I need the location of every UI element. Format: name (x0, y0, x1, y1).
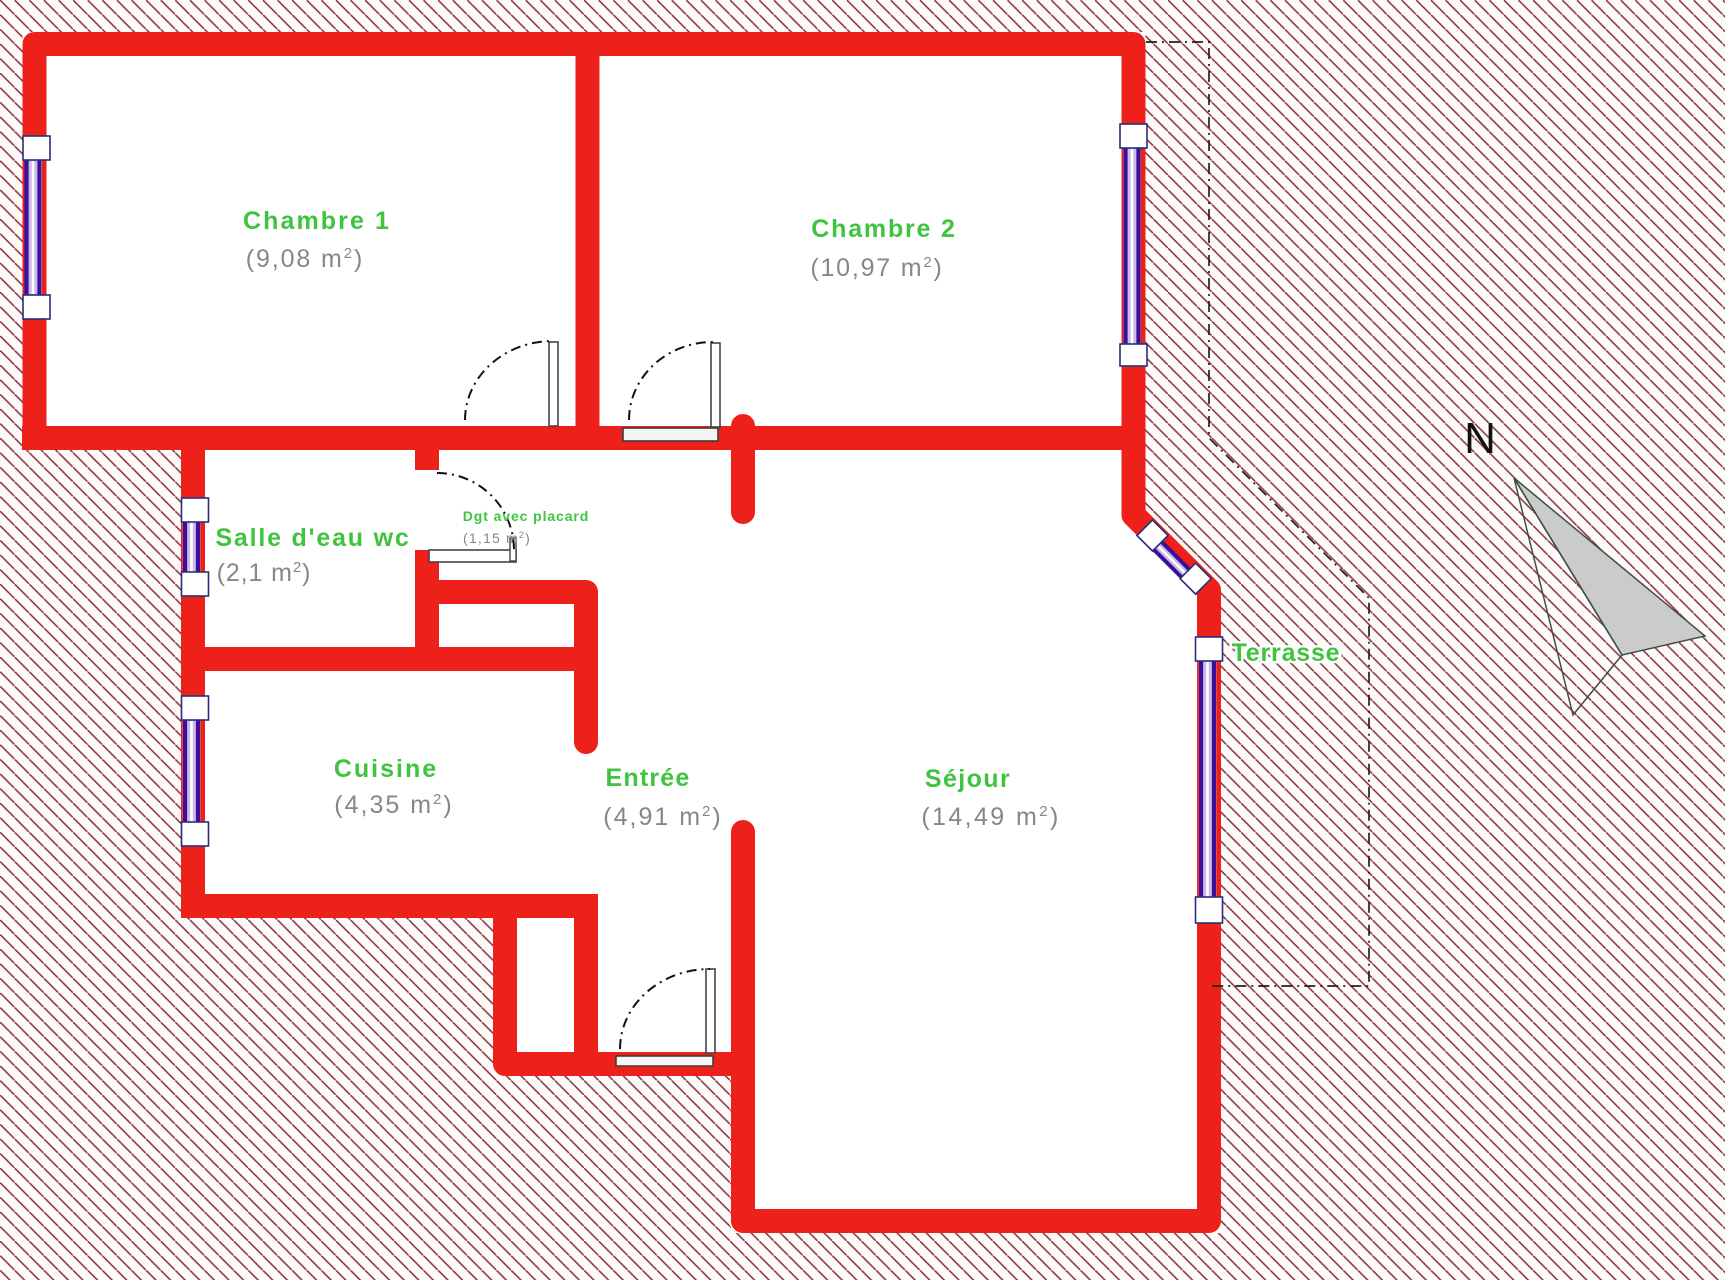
svg-text:Salle d'eau wc: Salle d'eau wc (215, 524, 410, 552)
svg-text:Dgt avec placard: Dgt avec placard (463, 508, 589, 524)
svg-text:Cuisine: Cuisine (334, 755, 438, 783)
svg-text:Chambre 1: Chambre 1 (243, 207, 391, 235)
svg-text:N: N (1464, 414, 1496, 463)
svg-text:Terrasse: Terrasse (1232, 639, 1341, 667)
svg-text:Chambre 2: Chambre 2 (811, 215, 956, 243)
svg-text:Séjour: Séjour (925, 765, 1011, 793)
svg-text:Entrée: Entrée (605, 764, 690, 792)
